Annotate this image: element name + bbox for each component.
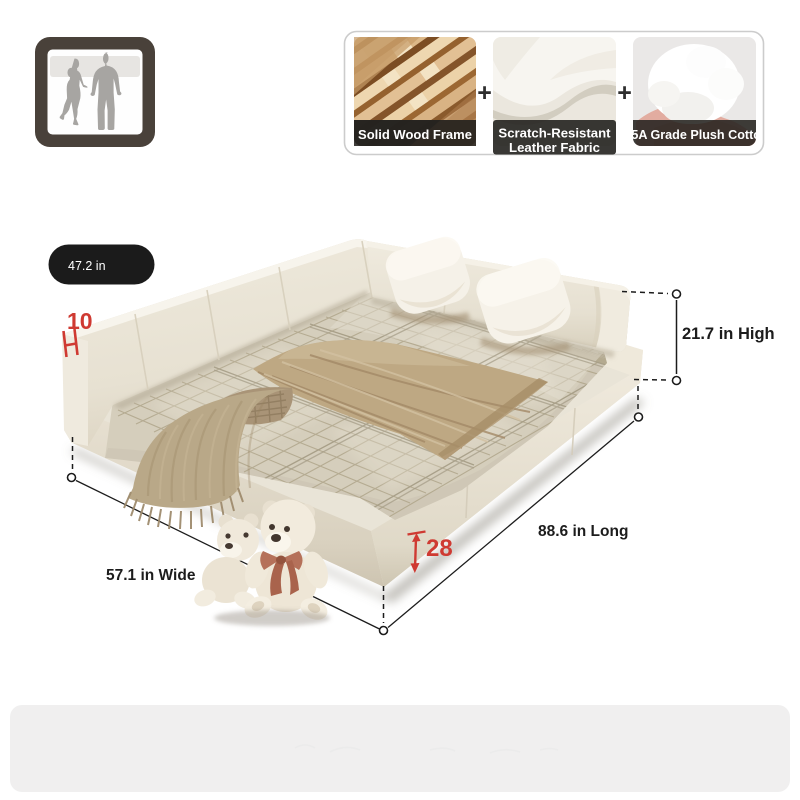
svg-text:+: + — [617, 79, 632, 107]
svg-text:10: 10 — [67, 308, 93, 334]
svg-text:21.7 in High: 21.7 in High — [682, 325, 775, 343]
svg-text:Solid Wood Frame: Solid Wood Frame — [358, 127, 472, 142]
svg-text:+: + — [477, 79, 492, 107]
svg-text:57.1 in Wide: 57.1 in Wide — [106, 567, 196, 584]
svg-text:28: 28 — [426, 535, 453, 562]
svg-text:Scratch-Resistant: Scratch-Resistant — [498, 126, 611, 141]
svg-text:88.6 in Long: 88.6 in Long — [538, 523, 628, 540]
svg-text:47.2 in: 47.2 in — [68, 259, 106, 273]
svg-text:5A Grade Plush Cotton: 5A Grade Plush Cotton — [631, 128, 768, 142]
svg-text:Leather Fabric: Leather Fabric — [509, 140, 600, 155]
